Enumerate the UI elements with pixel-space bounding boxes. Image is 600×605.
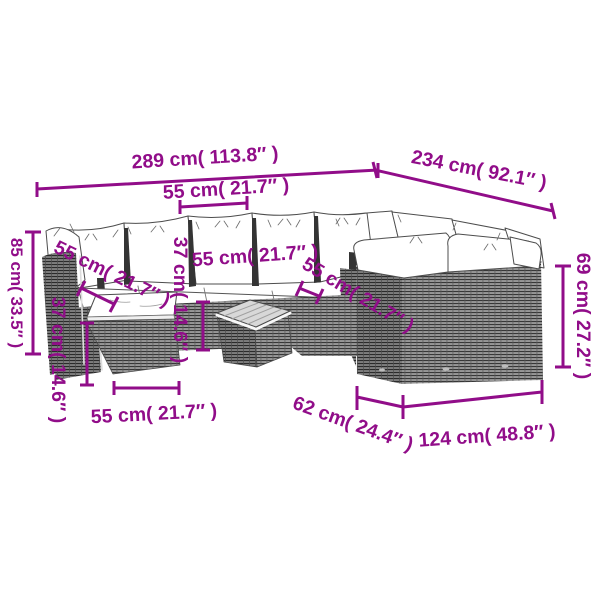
svg-text:37 cm( 14.6″ ): 37 cm( 14.6″ ) (47, 297, 69, 423)
svg-text:37 cm( 14.6″ ): 37 cm( 14.6″ ) (169, 237, 191, 363)
svg-text:85 cm( 33.5″ ): 85 cm( 33.5″ ) (7, 238, 26, 348)
svg-text:69 cm( 27.2″ ): 69 cm( 27.2″ ) (572, 253, 594, 379)
